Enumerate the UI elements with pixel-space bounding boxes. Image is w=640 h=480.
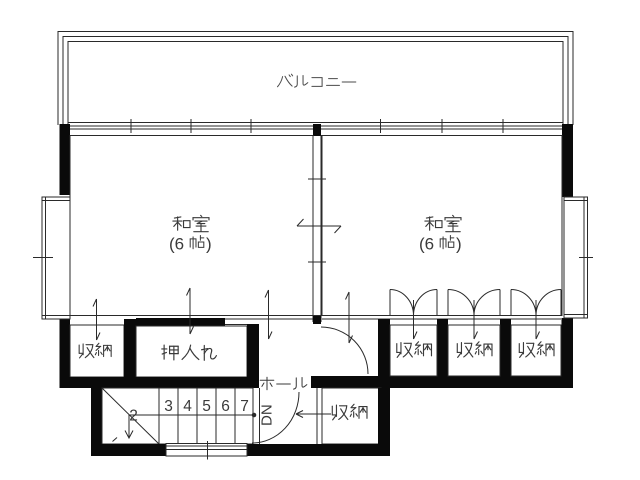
svg-text:7: 7 <box>240 398 249 415</box>
svg-text:4: 4 <box>183 398 192 415</box>
svg-text:5: 5 <box>202 398 211 415</box>
svg-text:(6: (6 <box>419 235 434 254</box>
svg-text:DN: DN <box>259 404 276 426</box>
svg-text:2: 2 <box>129 408 138 425</box>
svg-text:6: 6 <box>221 398 230 415</box>
svg-text:): ) <box>206 235 212 254</box>
svg-text:3: 3 <box>164 398 173 415</box>
svg-text:): ) <box>456 235 462 254</box>
svg-text:(6: (6 <box>169 235 184 254</box>
